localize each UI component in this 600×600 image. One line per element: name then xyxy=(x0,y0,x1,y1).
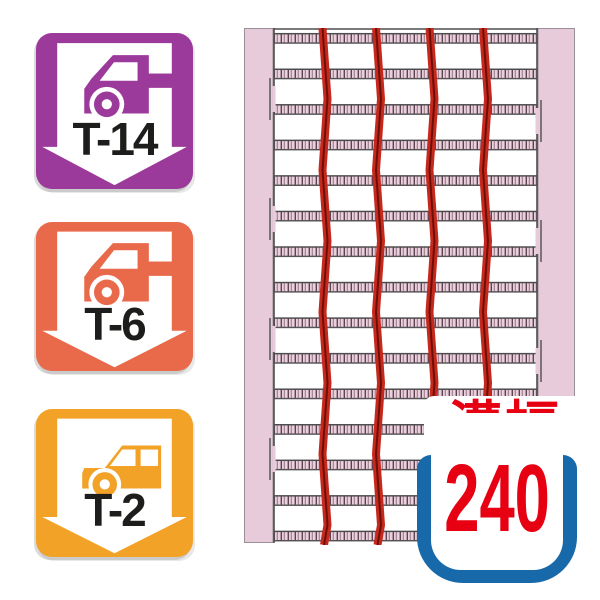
channel-frame-left xyxy=(245,29,274,543)
load-rating-label: T-14 xyxy=(36,116,193,162)
load-rating-label: T-6 xyxy=(36,301,193,347)
groove-width-marker: 溝幅 240 xyxy=(410,392,600,592)
groove-width-value: 240 xyxy=(444,451,550,547)
truck-icon xyxy=(74,52,174,120)
load-rating-badge-t6: T-6 xyxy=(36,222,193,371)
load-rating-label: T-2 xyxy=(36,487,193,533)
load-rating-badge-t2: T-2 xyxy=(36,409,193,557)
load-rating-badge-t14: T-14 xyxy=(36,33,193,189)
u-channel-icon: 240 xyxy=(417,455,577,583)
product-image: T-14 T-6 T-2 xyxy=(0,0,600,600)
